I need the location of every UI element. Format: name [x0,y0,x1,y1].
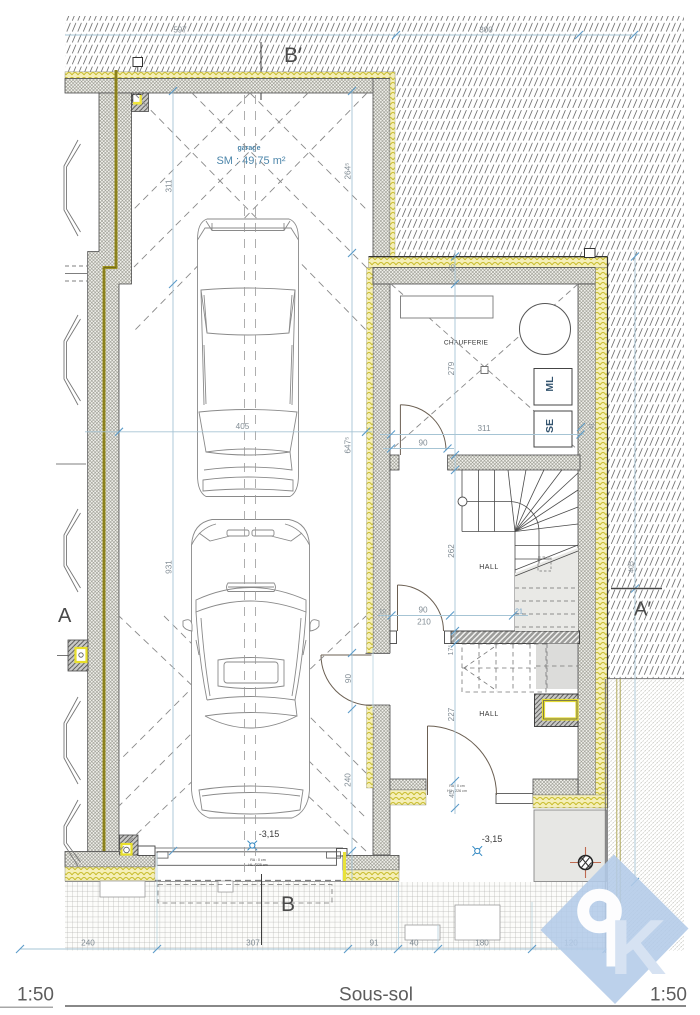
svg-text:405: 405 [236,422,250,431]
svg-text:-3,15: -3,15 [482,834,503,844]
svg-text:240: 240 [81,939,95,948]
svg-text:HL : 225 cm: HL : 225 cm [248,863,267,867]
svg-text:90: 90 [344,674,353,684]
svg-text:311: 311 [477,424,490,433]
svg-text:180: 180 [475,939,489,948]
svg-text:307: 307 [246,939,260,948]
svg-text:1:50: 1:50 [17,985,54,1006]
svg-text:A: A [58,605,72,627]
svg-text:17⁵: 17⁵ [448,645,455,656]
svg-text:311: 311 [165,179,174,192]
svg-text:ML: ML [544,376,556,392]
svg-text:SM : 49,75 m²: SM : 49,75 m² [216,155,285,167]
svg-text:90: 90 [418,439,428,448]
svg-text:HALL: HALL [479,564,499,571]
svg-text:SE: SE [544,419,556,433]
svg-text:Sous-sol: Sous-sol [339,985,413,1006]
svg-text:227: 227 [447,707,456,721]
svg-text:647⁵: 647⁵ [344,436,353,453]
svg-text:90: 90 [418,606,428,615]
svg-text:240: 240 [344,773,353,787]
svg-text:279: 279 [447,361,456,375]
svg-text:10: 10 [379,610,386,616]
svg-text:1:50: 1:50 [650,985,687,1006]
svg-text:RA : 0 cm: RA : 0 cm [250,858,266,862]
svg-text:HALL: HALL [479,711,499,718]
svg-text:597: 597 [173,26,187,35]
svg-text:91: 91 [369,939,379,948]
svg-text:264⁵: 264⁵ [344,162,353,179]
svg-text:21: 21 [515,609,523,616]
svg-text:B′: B′ [284,44,302,67]
svg-text:405: 405 [629,561,636,573]
svg-text:262: 262 [447,544,456,558]
svg-text:210: 210 [417,618,431,627]
svg-text:931: 931 [165,560,174,574]
svg-text:45: 45 [449,790,456,798]
svg-text:A′: A′ [634,599,651,621]
svg-text:300: 300 [479,26,493,35]
svg-text:CHAUFFERIE: CHAUFFERIE [444,340,489,347]
svg-text:K: K [610,903,666,991]
svg-text:B: B [281,893,295,916]
svg-text:garage: garage [238,145,261,152]
svg-text:-3,15: -3,15 [259,829,280,839]
svg-text:40: 40 [409,939,419,948]
svg-text:45: 45 [450,264,457,272]
svg-text:41: 41 [590,422,596,429]
